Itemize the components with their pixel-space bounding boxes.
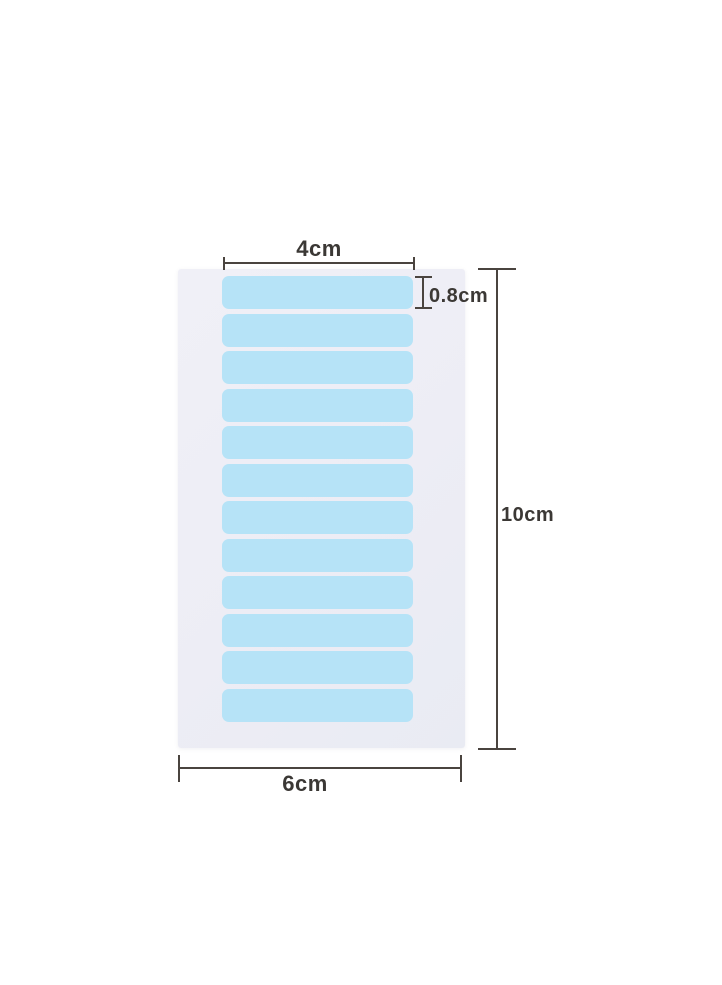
dimension-line-sheet-width [178, 767, 462, 769]
tape-tab [222, 576, 413, 609]
tape-tab [222, 464, 413, 497]
dimension-line-sheet-height [496, 268, 498, 750]
tape-tab [222, 426, 413, 459]
tape-tab [222, 314, 413, 347]
tape-tab [222, 389, 413, 422]
dim-label-tab-width: 4cm [223, 236, 415, 262]
tape-tab [222, 689, 413, 722]
tape-tab [222, 539, 413, 572]
tape-tab [222, 651, 413, 684]
tape-tab [222, 351, 413, 384]
product-dimension-diagram: 4cm 0.8cm 10cm 6cm [0, 0, 722, 985]
dimension-line-tab-width [223, 262, 415, 264]
dim-label-sheet-height: 10cm [501, 504, 554, 527]
dim-label-tab-height: 0.8cm [429, 285, 488, 308]
tape-tab [222, 276, 413, 309]
dimension-line-tab-height [422, 276, 424, 309]
dim-label-sheet-width: 6cm [163, 771, 447, 797]
tape-tabs [222, 276, 413, 722]
tape-tab [222, 501, 413, 534]
tape-tab [222, 614, 413, 647]
